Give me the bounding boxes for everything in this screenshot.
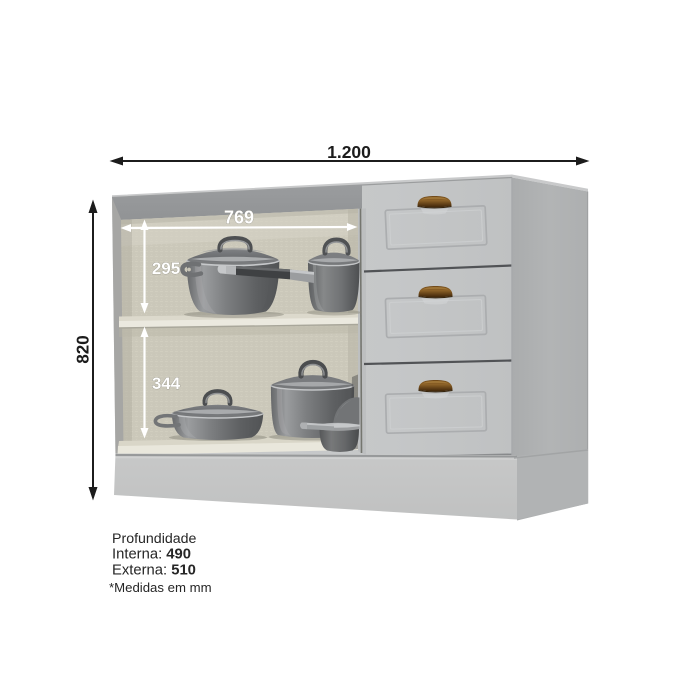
svg-text:Profundidade: Profundidade — [112, 531, 197, 547]
svg-text:Interna: 490: Interna: 490 — [112, 547, 191, 563]
svg-text:1.200: 1.200 — [327, 142, 371, 162]
svg-text:769: 769 — [224, 208, 254, 228]
svg-text:295: 295 — [152, 259, 180, 278]
svg-text:344: 344 — [152, 374, 181, 393]
svg-text:*Medidas em mm: *Medidas em mm — [109, 580, 212, 595]
svg-text:Externa: 510: Externa: 510 — [112, 563, 196, 579]
